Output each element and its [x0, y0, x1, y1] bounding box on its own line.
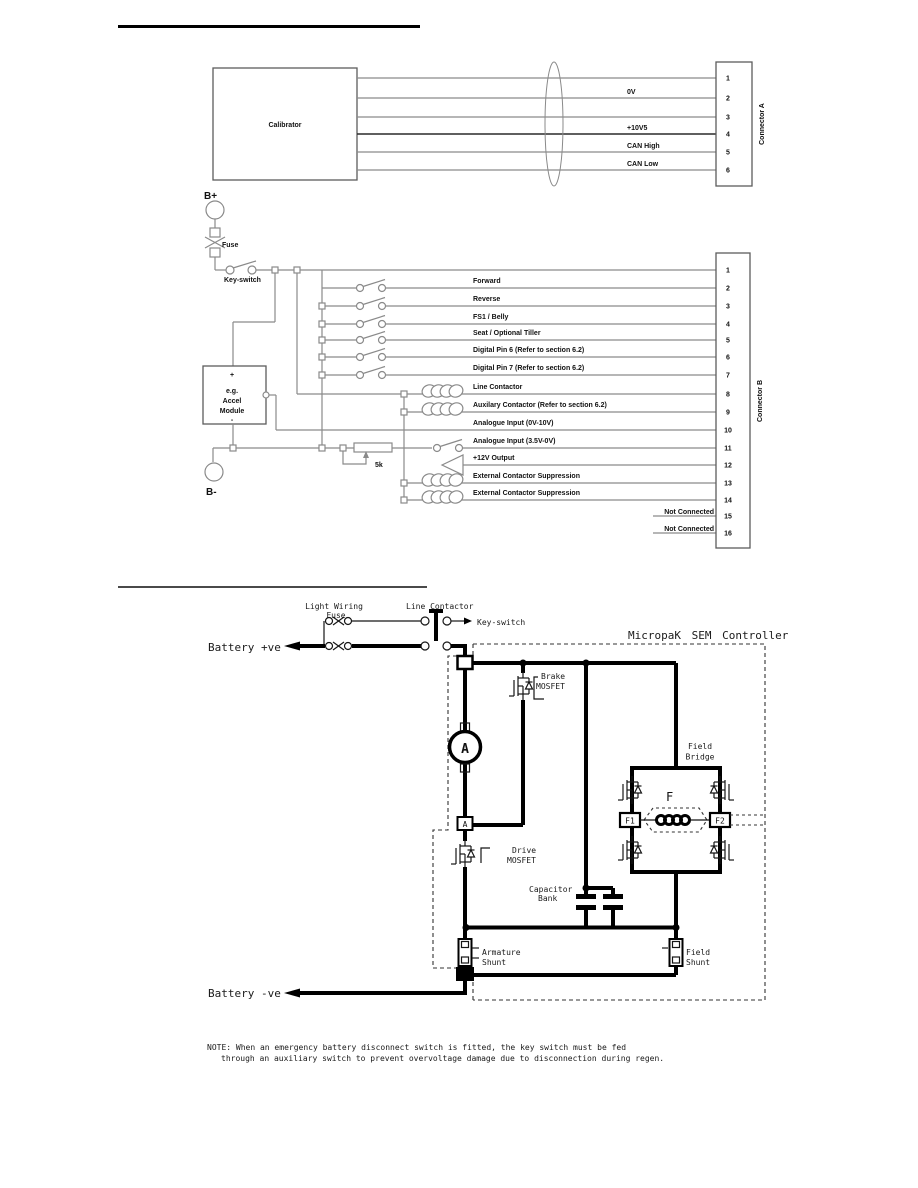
conn-b-pin: 5	[726, 338, 730, 345]
f2-label: F2	[715, 817, 725, 826]
keyswitch-label-bottom: Key-switch	[477, 618, 525, 627]
wire-label-ext-suppression-1: External Contactor Suppression	[473, 473, 580, 480]
fuse-symbol	[210, 228, 220, 237]
conn-a-pin: 3	[726, 115, 730, 122]
field-bridge-label1: Field	[688, 742, 712, 751]
wire-label-10v5: +10V5	[627, 125, 648, 132]
switch-rows	[322, 280, 716, 379]
section-rule-2	[118, 586, 427, 588]
armature-shunt-label1: Armature	[482, 948, 521, 957]
wire-label-digital7: Digital Pin 7 (Refer to section 6.2)	[473, 365, 584, 372]
field-mosfet-tl	[618, 776, 642, 804]
capacitor-bank-label1: Capacitor	[529, 885, 573, 894]
conn-b-pin: 12	[724, 463, 732, 470]
conn-b-pin: 7	[726, 373, 730, 380]
conn-a-pin: 5	[726, 150, 730, 157]
manual-page: Calibrator 0V +10V5 CAN High CAN Low 1 2…	[0, 0, 918, 1188]
line-contactor-aux-contact	[421, 617, 429, 625]
capacitor-2	[603, 894, 623, 899]
wire-label-aux-contactor: Auxilary Contactor (Refer to section 6.2…	[473, 402, 607, 409]
connector-b-diagram: B+ Fuse Key-switch + e.g. Accel Module	[203, 191, 764, 548]
armature-shunt	[459, 939, 472, 966]
sem-controller-diagram: Light Wiring Fuse Line Contactor Micropa…	[207, 602, 789, 1063]
controller-title: MicropaK SEM Controller	[628, 629, 789, 642]
wire-label-seat: Seat / Optional Tiller	[473, 330, 541, 337]
key-switch-label: Key-switch	[224, 277, 261, 284]
brake-mosfet-label1: Brake	[541, 672, 565, 681]
wire-label-ext-suppression-2: External Contactor Suppression	[473, 490, 580, 497]
calibrator-diagram: Calibrator 0V +10V5 CAN High CAN Low 1 2…	[213, 62, 766, 186]
connector-b-box	[716, 253, 750, 548]
wire-label-0v: 0V	[627, 89, 636, 96]
light-wiring-label: Light Wiring	[305, 602, 363, 611]
battery-neg-arrow	[284, 989, 300, 998]
accel-module-eg: e.g.	[226, 388, 238, 395]
pot-5k-label: 5k	[375, 462, 383, 469]
bplus-label: B+	[204, 191, 217, 202]
main-fuse	[326, 643, 333, 650]
wire-label-line-contactor: Line Contactor	[473, 384, 523, 391]
bminus-label: B-	[206, 487, 217, 498]
wire-label-nc2: Not Connected	[664, 526, 714, 533]
accel-module-plus: +	[230, 372, 234, 379]
conn-b-pin: 9	[726, 410, 730, 417]
battery-pos-arrow	[284, 642, 300, 651]
conn-a-pin: 2	[726, 96, 730, 103]
field-winding-label: F	[666, 790, 673, 804]
conn-b-pin: 8	[726, 392, 730, 399]
brake-mosfet-label2: MOSFET	[536, 682, 565, 691]
wire-label-canlow: CAN Low	[627, 161, 659, 168]
connector-a-box	[716, 62, 752, 186]
bminus-terminal	[205, 463, 223, 481]
capacitor-bank-label2: Bank	[538, 894, 557, 903]
motor-a-label: A	[461, 742, 469, 757]
field-shunt	[670, 939, 683, 966]
brake-mosfet	[509, 672, 533, 700]
accel-module-name1: Accel	[223, 398, 242, 405]
connector-b-label: Connector B	[757, 380, 764, 422]
conn-b-pin: 13	[724, 481, 732, 488]
field-mosfet-bl	[618, 836, 642, 864]
wiring-diagrams: Calibrator 0V +10V5 CAN High CAN Low 1 2…	[0, 0, 918, 1188]
conn-a-pin: 1	[726, 76, 730, 83]
bminus-stud	[456, 967, 474, 981]
bplus-stud	[458, 656, 473, 669]
conn-b-pin: 11	[724, 446, 732, 453]
conn-b-pin: 15	[724, 514, 732, 521]
conn-b-pin: 1	[726, 268, 730, 275]
wire-label-12v-output: +12V Output	[473, 455, 515, 462]
accel-wiper-terminal	[263, 392, 269, 398]
f1-label: F1	[625, 817, 635, 826]
armature-shunt-label2: Shunt	[482, 958, 506, 967]
battery-pos-label: Battery +ve	[208, 641, 281, 654]
conn-b-pin: 16	[724, 531, 732, 538]
field-mosfet-br	[711, 836, 735, 864]
conn-b-pin: 2	[726, 286, 730, 293]
accel-module-box	[203, 366, 266, 424]
wire-label-reverse: Reverse	[473, 296, 500, 303]
wire-label-nc1: Not Connected	[664, 509, 714, 516]
wire-label-fs1: FS1 / Belly	[473, 314, 509, 321]
drive-mosfet-label2: MOSFET	[507, 856, 536, 865]
conn-b-pin: 4	[726, 322, 730, 329]
cable-bundle-ellipse	[545, 62, 563, 186]
calibrator-label: Calibrator	[268, 122, 301, 129]
drive-mosfet-label1: Drive	[512, 846, 536, 855]
keyswitch-arrow	[464, 618, 472, 625]
section-rule-1	[118, 25, 420, 28]
drive-mosfet	[451, 840, 475, 868]
armature-terminal-label: A	[463, 820, 468, 829]
bplus-terminal	[206, 201, 224, 219]
connector-a-label: Connector A	[759, 103, 766, 145]
capacitor-1	[576, 894, 596, 899]
battery-neg-label: Battery -ve	[208, 987, 281, 1000]
output-12v-symbol	[442, 455, 463, 475]
wire-label-analogue2: Analogue Input (3.5V-0V)	[473, 438, 555, 445]
key-switch-symbol	[226, 261, 256, 274]
wire-label-canhigh: CAN High	[627, 143, 660, 150]
conn-b-pin: 10	[724, 428, 732, 435]
conn-b-pin: 14	[724, 498, 732, 505]
line-contactor-main-contact	[421, 642, 429, 650]
conn-a-pin: 4	[726, 132, 730, 139]
field-mosfet-tr	[711, 776, 735, 804]
pot-5k-symbol	[354, 443, 392, 452]
fuse-label: Fuse	[222, 242, 238, 249]
note-line-1: NOTE: When an emergency battery disconne…	[207, 1043, 626, 1052]
conn-a-pin: 6	[726, 168, 730, 175]
field-shunt-label1: Field	[686, 948, 710, 957]
field-bridge-label2: Bridge	[686, 753, 715, 762]
conn-b-pin: 3	[726, 304, 730, 311]
wire-label-forward: Forward	[473, 278, 501, 285]
wire-label-digital6: Digital Pin 6 (Refer to section 6.2)	[473, 347, 584, 354]
conn-b-pin: 6	[726, 355, 730, 362]
wire-label-analogue1: Analogue Input (0V-10V)	[473, 420, 554, 427]
analogue-switch	[434, 440, 463, 452]
field-shunt-label2: Shunt	[686, 958, 710, 967]
accel-module-name2: Module	[220, 408, 245, 415]
note-line-2: through an auxiliary switch to prevent o…	[221, 1054, 664, 1063]
